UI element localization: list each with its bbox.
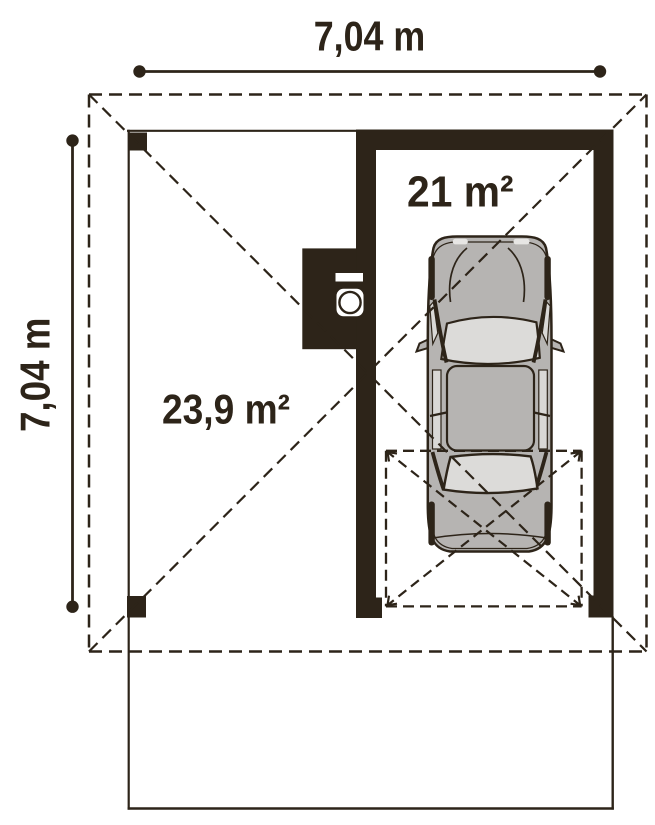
svg-text:7,04 m: 7,04 m xyxy=(314,12,426,59)
svg-text:7,04 m: 7,04 m xyxy=(12,318,59,433)
svg-text:21 m²: 21 m² xyxy=(407,168,514,217)
svg-text:23,9 m²: 23,9 m² xyxy=(162,385,290,432)
